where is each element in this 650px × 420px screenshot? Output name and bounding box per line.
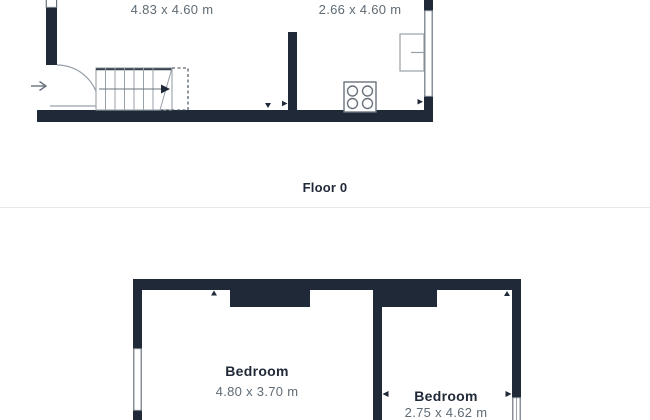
room-name-label: Bedroom (225, 363, 289, 379)
wall-recess (373, 290, 437, 307)
dimension-marker-icon (383, 391, 389, 397)
counter-fixture-icon (400, 34, 424, 71)
room-dimension-label: 2.75 x 4.62 m (405, 405, 488, 420)
left-wall (133, 279, 142, 348)
window-icon (424, 10, 433, 97)
left-wall (46, 8, 57, 65)
interior-wall (288, 32, 297, 110)
dimension-marker-icon (282, 101, 288, 106)
window-icon (133, 348, 142, 411)
wall-recess (230, 290, 310, 307)
stove-icon (344, 82, 376, 112)
top-wall (133, 279, 520, 290)
dimension-marker-icon (506, 391, 512, 397)
room-dimension-label: 4.83 x 4.60 m (131, 2, 214, 17)
room-name-label: Bedroom (414, 388, 478, 404)
window-icon (46, 0, 58, 8)
dimension-marker-icon (265, 103, 271, 108)
dimension-marker-icon (504, 291, 510, 296)
door-arc (50, 65, 99, 107)
interior-wall (373, 290, 382, 420)
window-icon (512, 397, 521, 420)
room-dimension-label: 4.80 x 3.70 m (216, 384, 299, 399)
floorplan-canvas: 4.83 x 4.60 m 2.66 x 4.60 m Floor 0 Bedr… (0, 0, 650, 420)
stairs-icon (96, 68, 188, 110)
right-wall-bottom (424, 97, 433, 122)
dimension-marker-icon (418, 99, 424, 105)
room-dimension-label: 2.66 x 4.60 m (319, 2, 402, 17)
dimension-marker-icon (211, 291, 217, 296)
floorplan-drawing (0, 0, 650, 420)
entry-arrow-icon (31, 82, 46, 91)
right-wall-top (424, 0, 433, 10)
floor0-plan (31, 0, 433, 122)
section-divider (0, 207, 650, 208)
left-wall-lower (133, 411, 142, 420)
right-wall (512, 279, 521, 397)
floor-label: Floor 0 (303, 180, 348, 195)
